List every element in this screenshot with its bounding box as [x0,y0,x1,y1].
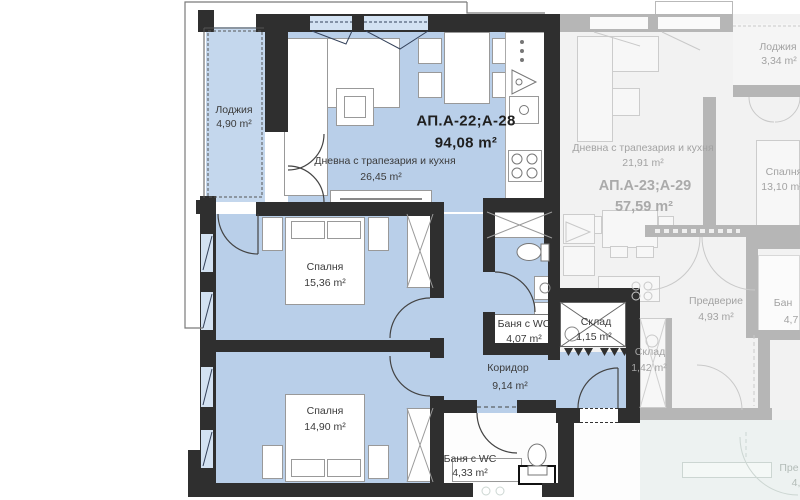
apartment-a23-region[interactable] [640,14,800,420]
pier-bottom-left [188,450,200,497]
lower-unit-area: 4, [792,477,800,489]
floor-plan-canvas: Лоджия 4,90 m² АП.А-22;А-28 94,08 m² Дне… [0,0,800,500]
lower-unit-counter [682,462,772,478]
lower-unit-tint [640,420,800,500]
apartment-a22-region[interactable] [200,10,640,497]
lower-unit-name: Пре [779,462,798,474]
